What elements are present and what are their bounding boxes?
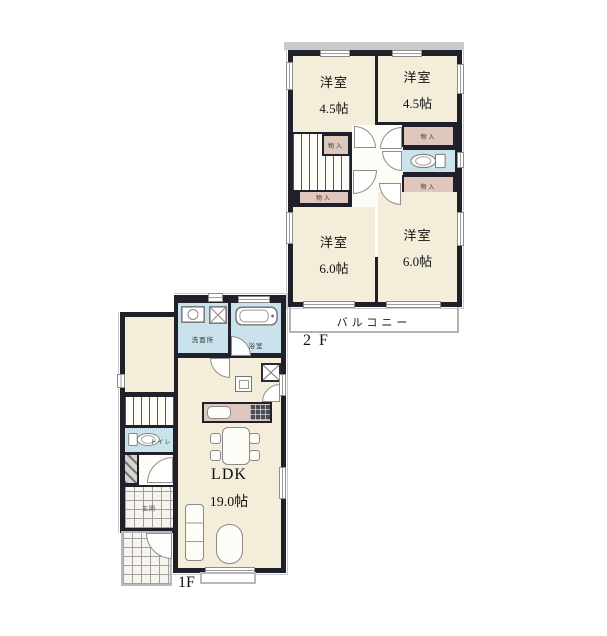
window (320, 50, 350, 57)
room-size: 4.5帖 (403, 93, 432, 112)
room-name: 洋室 (320, 232, 348, 251)
window (238, 296, 270, 303)
terrace-step (200, 572, 256, 584)
washroom-label: 洗面所 (180, 334, 226, 344)
window (279, 374, 286, 396)
closet: 物入 (298, 190, 350, 205)
chair (249, 450, 260, 461)
ldk-name: LDK (197, 466, 261, 484)
balcony-label: バルコニー (337, 317, 412, 329)
coffee-table (216, 524, 243, 564)
washing-machine-icon (181, 306, 205, 323)
room-name: 洋室 (403, 67, 431, 86)
stove-icon (250, 405, 270, 420)
refrigerator-icon (235, 376, 252, 392)
toilet-2f (402, 150, 455, 172)
chair (210, 450, 221, 461)
toilet-icon (409, 152, 447, 170)
floor-label-1f: 1F (178, 574, 195, 592)
roof-eave (284, 42, 464, 50)
floor-label-2f: 2 F (303, 332, 330, 350)
window (457, 152, 464, 168)
room-name: 洋室 (403, 225, 431, 244)
bathtub-icon (235, 306, 278, 326)
closet-label: 物入 (328, 141, 344, 150)
chair (249, 433, 260, 444)
window (279, 467, 286, 499)
window (303, 301, 355, 308)
floor-plan: バルコニー 洋室 4.5帖 洋室 4.5帖 物入 物入 (0, 0, 607, 636)
bathroom-label: 浴室 (239, 340, 273, 350)
room-size: 6.0帖 (319, 258, 348, 277)
dining-table (222, 427, 250, 465)
window (386, 301, 441, 308)
closet-label: 物入 (316, 193, 332, 202)
shoe-cabinet (125, 455, 137, 483)
bedroom-2f-bottom-right: 洋室 6.0帖 (378, 192, 457, 302)
bedroom-2f-bottom-left: 洋室 6.0帖 (293, 207, 375, 302)
chair (210, 433, 221, 444)
window (208, 293, 223, 302)
washbasin-icon (209, 306, 227, 324)
kitchen-sink-icon (207, 406, 231, 419)
stairs-1f (125, 397, 174, 425)
window (286, 62, 293, 90)
room-1f-left (125, 317, 174, 392)
room-name: 洋室 (320, 72, 348, 91)
storage-x-icon (261, 363, 281, 382)
bedroom-2f-top-left: 洋室 4.5帖 (293, 56, 375, 132)
sofa (185, 504, 204, 561)
ldk-size: 19.0帖 (197, 491, 261, 511)
window (457, 64, 464, 94)
window (117, 374, 125, 388)
window (457, 212, 464, 246)
closet: 物入 (402, 125, 455, 147)
room-size: 4.5帖 (319, 98, 348, 117)
window (392, 50, 422, 57)
room-size: 6.0帖 (403, 251, 432, 270)
bedroom-2f-top-right: 洋室 4.5帖 (378, 56, 457, 122)
closet-label: 物入 (420, 132, 436, 141)
window (286, 212, 293, 244)
closet-label: 物入 (420, 182, 436, 191)
closet: 物入 (322, 134, 350, 156)
entrance-label: 玄関 (133, 504, 165, 513)
toilet-label: トイレ (148, 437, 174, 446)
shape-patch (116, 291, 174, 312)
